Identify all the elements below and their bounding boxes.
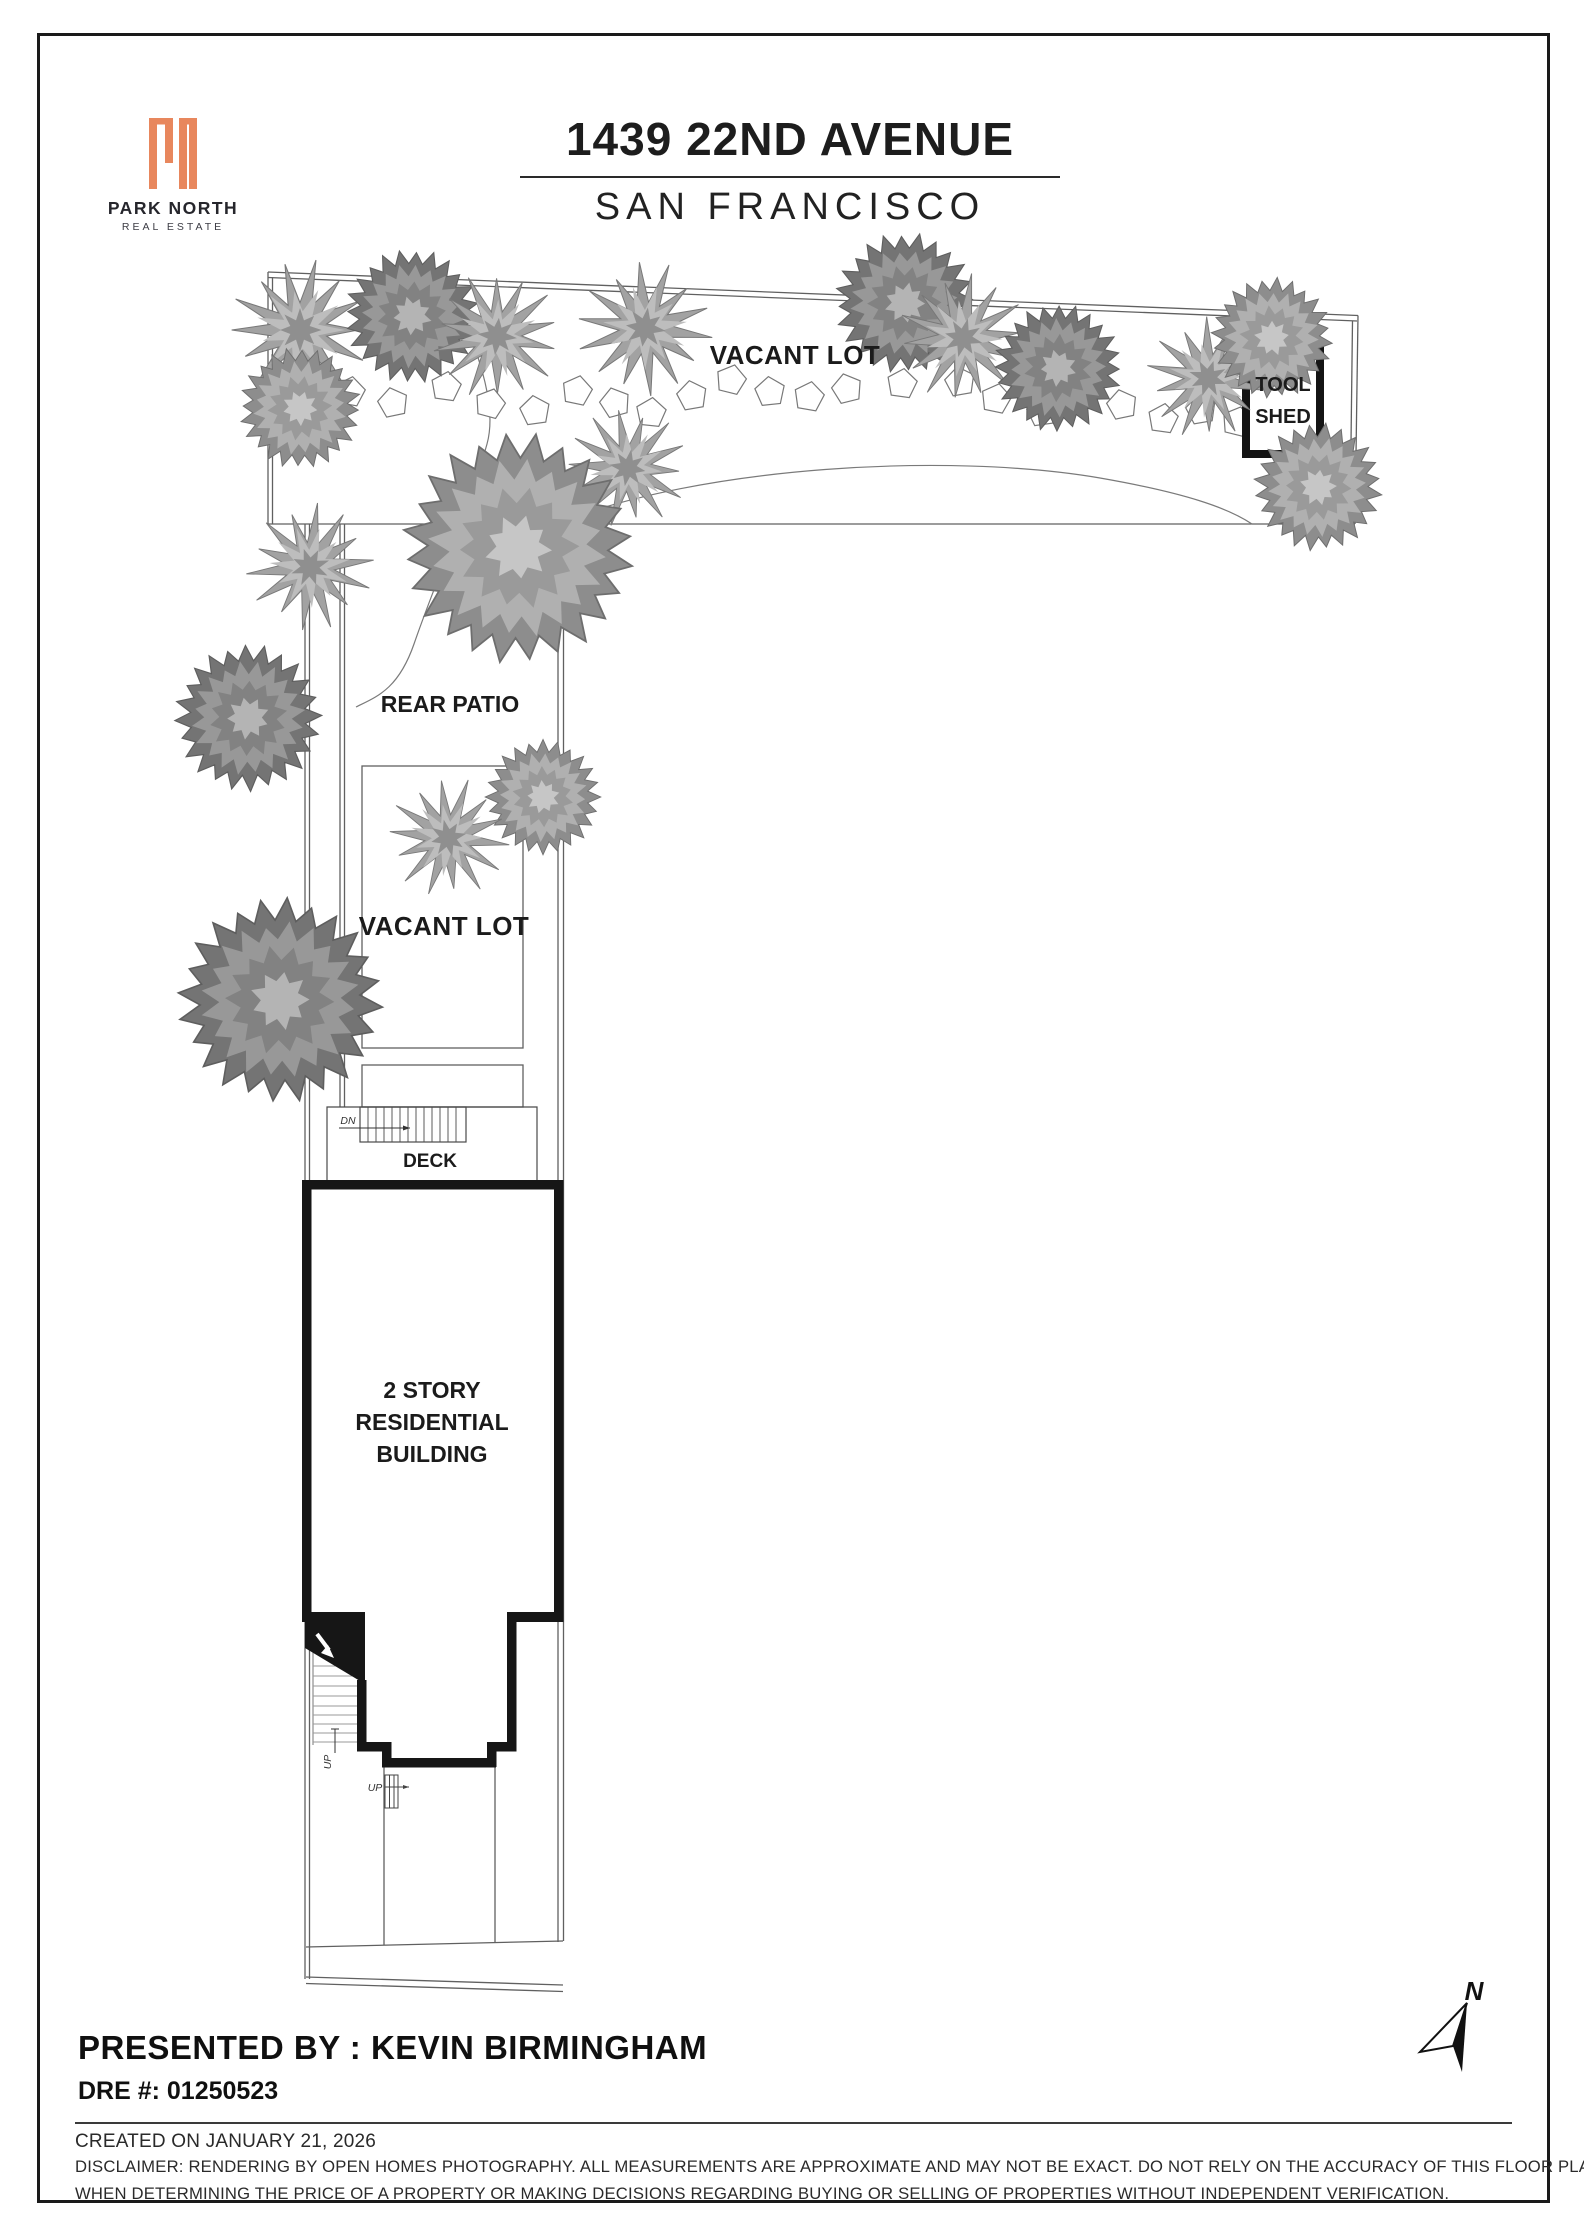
label-rear-patio: REAR PATIO — [381, 691, 519, 717]
label-building-line3: BUILDING — [376, 1441, 487, 1467]
stepping-stone — [635, 396, 667, 427]
label-dn: DN — [340, 1115, 356, 1127]
stepping-stone — [754, 375, 786, 406]
disclaimer-line2: WHEN DETERMINING THE PRICE OF A PROPERTY… — [75, 2184, 1449, 2204]
tool-shed-label-line1: TOOL — [1255, 374, 1310, 396]
stepping-stone — [829, 370, 864, 404]
floorplan-page: { "header": { "brand": { "name": "PARK N… — [0, 0, 1584, 2240]
stepping-stones — [333, 361, 1255, 437]
label-north: N — [1465, 1976, 1485, 2006]
created-on: CREATED ON JANUARY 21, 2026 — [75, 2131, 376, 2153]
stepping-stone — [792, 379, 826, 412]
tool-shed-label-line2: SHED — [1255, 406, 1311, 428]
tree — [152, 622, 344, 814]
tree — [232, 492, 390, 648]
label-deck: DECK — [403, 1151, 457, 1172]
building-outline — [302, 1180, 564, 1768]
stepping-stone — [430, 370, 463, 402]
tree — [570, 254, 722, 404]
label-up-side: UP — [322, 1755, 334, 1770]
stepping-stone — [675, 378, 709, 411]
disclaimer-line1: DISCLAIMER: RENDERING BY OPEN HOMES PHOT… — [75, 2157, 1584, 2177]
stepping-stone — [597, 384, 633, 419]
stepping-stone — [1104, 387, 1139, 421]
dre-number: DRE #: 01250523 — [78, 2077, 278, 2106]
label-up-front: UP — [368, 1782, 383, 1794]
presented-by: PRESENTED BY : KEVIN BIRMINGHAM — [78, 2029, 707, 2067]
label-building-line1: 2 STORY — [383, 1377, 480, 1403]
site-plan: TOOL SHED VACANT LOT REAR PATIO VACANT L… — [0, 0, 1584, 2240]
stepping-stone — [518, 394, 551, 426]
front-stair — [385, 1775, 409, 1808]
label-vacant-lot-top: VACANT LOT — [710, 340, 881, 370]
label-building-line2: RESIDENTIAL — [355, 1409, 508, 1435]
footer-divider — [75, 2122, 1512, 2124]
stepping-stone — [560, 373, 595, 407]
stepping-stone — [375, 385, 410, 419]
stepping-stone — [473, 385, 509, 420]
label-vacant-lot-left: VACANT LOT — [359, 911, 530, 941]
north-arrow-icon: N — [1420, 1976, 1485, 2072]
